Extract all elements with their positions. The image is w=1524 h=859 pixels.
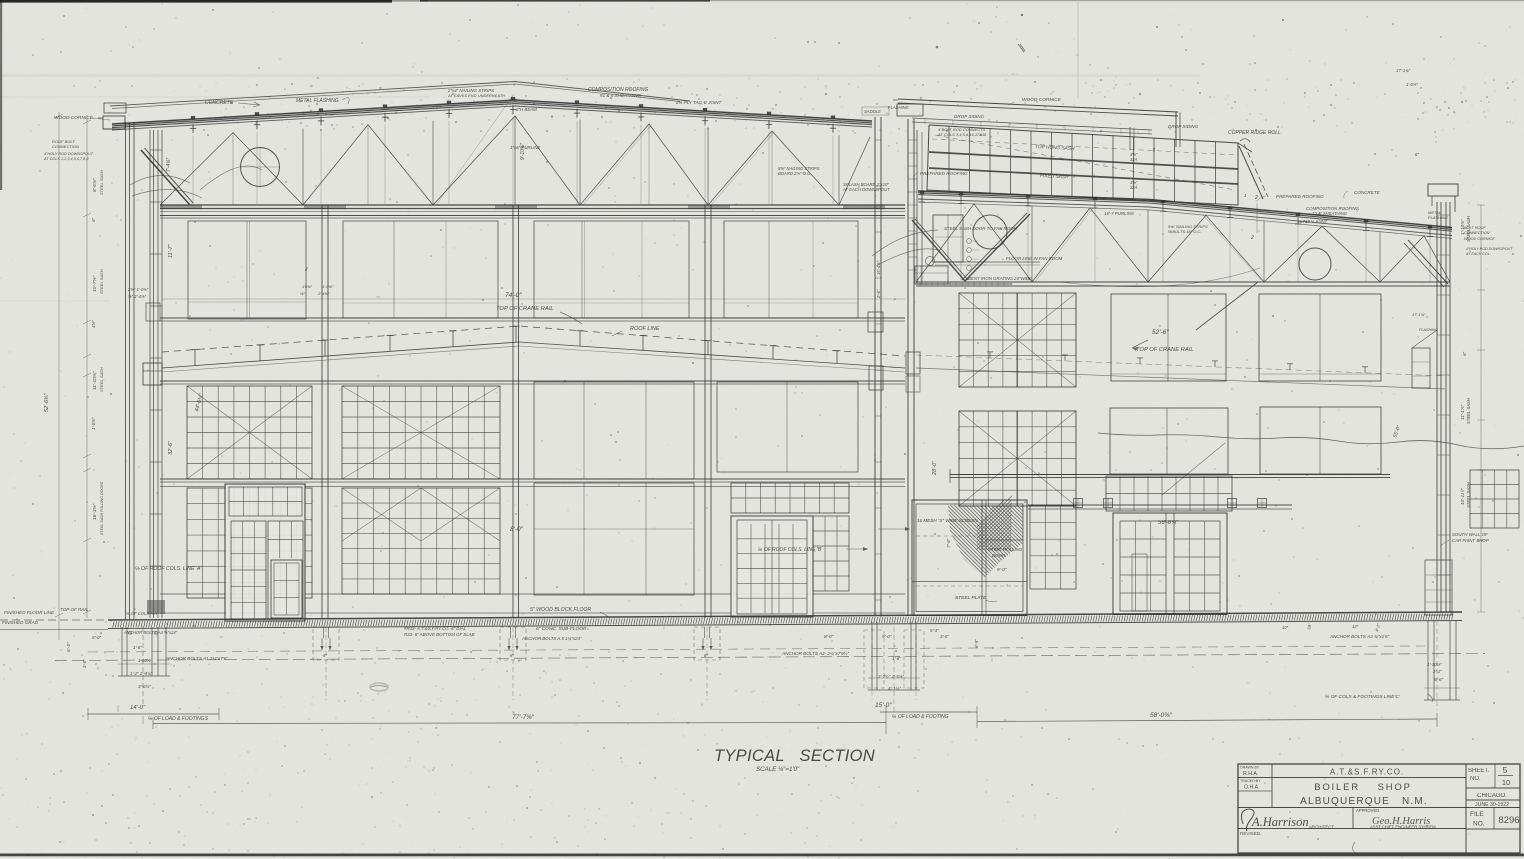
svg-text:14′-0″: 14′-0″: [130, 705, 146, 711]
svg-text:1′-0⅜″: 1′-0⅜″: [1406, 82, 1418, 87]
svg-text:DRAWN BY: DRAWN BY: [1240, 766, 1260, 770]
svg-text:FLOOR LINE IN FAN ROOM: FLOOR LINE IN FAN ROOM: [1006, 256, 1063, 261]
svg-text:TOP OF RAIL: TOP OF RAIL: [60, 607, 89, 612]
svg-text:STEEL PLATE: STEEL PLATE: [955, 595, 987, 601]
svg-text:STEEL SASH: STEEL SASH: [1466, 397, 1471, 424]
svg-text:ARCHITECT.: ARCHITECT.: [1309, 824, 1335, 829]
svg-text:№BOLTS 48″ O.C.: №BOLTS 48″ O.C.: [1168, 229, 1201, 234]
svg-text:METAL FLASHING: METAL FLASHING: [296, 98, 339, 104]
svg-text:℅ OF COLS A-A: ℅ OF COLS A-A: [126, 611, 157, 616]
svg-text:BOARD 2⅞″ O.G.: BOARD 2⅞″ O.G.: [778, 171, 811, 176]
svg-text:9′-0″: 9′-0″: [997, 567, 1007, 573]
svg-text:1: 1: [1244, 193, 1247, 198]
svg-text:8″: 8″: [704, 653, 708, 658]
svg-text:STEEL SASH: STEEL SASH: [99, 170, 104, 195]
svg-text:16′-7 PURLINS: 16′-7 PURLINS: [1104, 211, 1134, 216]
svg-text:DOOR: DOOR: [992, 553, 1006, 558]
svg-text:2″x4″ SHEATHING: 2″x4″ SHEATHING: [1311, 211, 1348, 216]
svg-text:CONCRETE: CONCRETE: [1354, 190, 1381, 195]
svg-text:1′-2″ 2′-4¼″: 1′-2″ 2′-4¼″: [130, 671, 153, 676]
svg-text:WOOD CORNICE: WOOD CORNICE: [1022, 97, 1062, 103]
svg-text:16′-3⅜″: 16′-3⅜″: [92, 503, 98, 520]
svg-text:AT COLS 1,2,3,4,5,6,7,8,9: AT COLS 1,2,3,4,5,6,7,8,9: [43, 157, 89, 161]
svg-text:№7&9 V JOINT: №7&9 V JOINT: [1298, 219, 1328, 224]
svg-text:ANCHOR BOLTS A3 ¾″x1′6″: ANCHOR BOLTS A3 ¾″x1′6″: [1329, 634, 1390, 639]
svg-text:15′-0″: 15′-0″: [875, 702, 892, 709]
svg-text:⅜″: ⅜″: [300, 291, 305, 296]
svg-text:52′-6″: 52′-6″: [1152, 329, 1169, 336]
svg-text:BENT IRON GRATING 24″WIDE: BENT IRON GRATING 24″WIDE: [968, 276, 1032, 281]
svg-text:ANCHOR BOLTS A2- 2¼″x7′9½″: ANCHOR BOLTS A2- 2¼″x7′9½″: [781, 650, 850, 656]
svg-text:4″HOLY ROD DOWNSPOUT: 4″HOLY ROD DOWNSPOUT: [44, 152, 94, 156]
svg-text:8′-0″: 8′-0″: [510, 526, 524, 533]
svg-text:REVISED.: REVISED.: [1240, 831, 1261, 836]
svg-text:10: 10: [1502, 778, 1510, 787]
svg-text:2: 2: [1250, 235, 1254, 241]
svg-text:⅜″ 2′-4⅜″: ⅜″ 2′-4⅜″: [128, 294, 146, 299]
svg-text:7′-4⅜″: 7′-4⅜″: [166, 158, 172, 172]
svg-text:3′-6½″: 3′-6½″: [138, 683, 151, 689]
svg-text:APPROVED.: APPROVED.: [1356, 808, 1380, 813]
svg-text:FLASHING: FLASHING: [1419, 328, 1438, 332]
svg-text:1-10½: 1-10½: [138, 658, 151, 663]
svg-text:PREPARED ROOFING: PREPARED ROOFING: [920, 171, 968, 176]
svg-text:FLASHING: FLASHING: [1428, 215, 1448, 220]
svg-text:8″: 8″: [323, 653, 327, 658]
svg-text:8′-6⅜″: 8′-6⅜″: [92, 178, 98, 192]
svg-text:3′-0″: 3′-0″: [940, 634, 949, 639]
svg-text:17′-1¾″: 17′-1¾″: [1396, 68, 1411, 73]
svg-text:SCALE ⅛″=1′0″: SCALE ⅛″=1′0″: [756, 766, 800, 773]
svg-text:1′-6″: 1′-6″: [133, 645, 142, 650]
svg-text:1′-10⅜″: 1′-10⅜″: [1460, 219, 1465, 235]
svg-text:AT EAVES END UNDERNEATH: AT EAVES END UNDERNEATH: [447, 93, 505, 98]
svg-text:32A: 32A: [1130, 157, 1138, 162]
svg-text:STEEL ROLLING: STEEL ROLLING: [988, 547, 1023, 552]
svg-text:BOILER SHOP: BOILER SHOP: [1314, 782, 1412, 793]
svg-text:1′-0⅜″: 1′-0⅜″: [91, 417, 96, 430]
svg-text:℅ OF ROOF COLS. LINE ‘B’: ℅ OF ROOF COLS. LINE ‘B’: [758, 547, 823, 553]
svg-text:AT EACH COL.: AT EACH COL.: [1465, 252, 1491, 256]
svg-text:2′-4⅜″: 2′-4⅜″: [317, 291, 330, 296]
svg-text:12″: 12″: [1352, 624, 1359, 629]
svg-text:8″H BEAM: 8″H BEAM: [516, 107, 537, 112]
svg-text:#R33- A.T.&S.F.RY.CO.-6″ DIAL: #R33- A.T.&S.F.RY.CO.-6″ DIAL: [404, 626, 467, 631]
svg-text:CAR PAINT SHOP: CAR PAINT SHOP: [1452, 538, 1489, 543]
svg-text:DROP SIDING: DROP SIDING: [954, 114, 985, 119]
svg-text:1′-6″: 1′-6″: [892, 656, 901, 661]
svg-text:SHEET.: SHEET.: [1468, 768, 1489, 774]
svg-text:28′-0″: 28′-0″: [932, 460, 938, 476]
svg-text:2: 2: [1254, 195, 1258, 201]
svg-text:ASST.CHIEF ENGINEER SYSTEM: ASST.CHIEF ENGINEER SYSTEM: [1370, 825, 1436, 830]
svg-text:PREPARED ROOFING: PREPARED ROOFING: [1276, 194, 1324, 199]
svg-text:TOP OF CRANE RAIL: TOP OF CRANE RAIL: [496, 306, 554, 312]
svg-text:ANCHOR BOLTS A1 2¼″x7′6″: ANCHOR BOLTS A1 2¼″x7′6″: [165, 656, 228, 661]
svg-text:O.H.A.: O.H.A.: [1244, 785, 1260, 791]
svg-text:STEEL SASH: STEEL SASH: [1466, 481, 1471, 508]
svg-text:16 MESH “X” WIRE SCREEN: 16 MESH “X” WIRE SCREEN: [917, 518, 978, 523]
svg-text:ANCHOR BOLTS A4 ⅝″x24″: ANCHOR BOLTS A4 ⅝″x24″: [123, 630, 178, 635]
svg-text:1′-0⅜″: 1′-0⅜″: [322, 284, 334, 289]
svg-text:CONNECTION: CONNECTION: [52, 144, 79, 149]
svg-text:CHICAGO.: CHICAGO.: [1477, 793, 1507, 799]
svg-text:ROOF LINE: ROOF LINE: [630, 326, 660, 332]
svg-text:9′-0″: 9′-0″: [882, 634, 892, 640]
svg-text:10′-7⅜″: 10′-7⅜″: [92, 275, 98, 292]
svg-text:FINISHED GRAD: FINISHED GRAD: [2, 620, 39, 625]
svg-text:COPPER RIDGE ROLL: COPPER RIDGE ROLL: [1228, 130, 1281, 136]
svg-text:TRACED BY: TRACED BY: [1240, 779, 1261, 783]
svg-text:11′-7″: 11′-7″: [168, 243, 174, 258]
svg-text:SADDLE: SADDLE: [864, 109, 881, 114]
svg-text:7′-6″: 7′-6″: [946, 538, 951, 548]
svg-text:11′-10⅜″: 11′-10⅜″: [92, 371, 98, 390]
svg-text:℅ OF LOAD & FOOTING: ℅ OF LOAD & FOOTING: [892, 714, 949, 720]
svg-text:2⅜″ 1′-0⅜″: 2⅜″ 1′-0⅜″: [127, 287, 149, 292]
svg-text:℅ OF COLS & FOOTINGS LINE‘C’: ℅ OF COLS & FOOTINGS LINE‘C’: [1325, 694, 1401, 700]
svg-text:2′-1″: 2′-1″: [1432, 669, 1442, 674]
svg-text:AT EACH DOWNSPOUT: AT EACH DOWNSPOUT: [842, 187, 890, 192]
svg-text:NO.: NO.: [1473, 821, 1485, 828]
svg-text:CONCRETE: CONCRETE: [205, 100, 234, 106]
svg-text:A.Harrison: A.Harrison: [1251, 815, 1309, 829]
svg-text:56′-6¼″: 56′-6¼″: [1158, 520, 1179, 526]
svg-text:4′-1½″: 4′-1½″: [888, 685, 901, 691]
svg-text:ANCHOR BOLTS A.5 1¼″x24″: ANCHOR BOLTS A.5 1¼″x24″: [521, 636, 582, 641]
svg-text:#1 & 4 SHEATHING: #1 & 4 SHEATHING: [600, 93, 641, 98]
svg-text:FILE: FILE: [1470, 811, 1484, 818]
svg-text:ALBUQUERQUE N.M.: ALBUQUERQUE N.M.: [1300, 796, 1428, 807]
svg-text:16′-4⅜″: 16′-4⅜″: [876, 260, 881, 275]
svg-text:9′-10⅜″: 9′-10⅜″: [520, 143, 526, 160]
svg-text:R33- 6″ ABOVE BOTTOM OF SLAB: R33- 6″ ABOVE BOTTOM OF SLAB: [404, 632, 475, 637]
svg-text:STEEL SASH FOLDING DOORS: STEEL SASH FOLDING DOORS: [100, 481, 104, 535]
svg-text:10′-11⅟″: 10′-11⅟″: [1460, 488, 1465, 505]
svg-text:R.H.A.: R.H.A.: [1243, 771, 1258, 777]
svg-text:5″ WOOD BLOCK FLOOR: 5″ WOOD BLOCK FLOOR: [530, 607, 591, 613]
svg-text:STEEL SASH: STEEL SASH: [99, 367, 104, 392]
svg-text:6″ CONC. SUB-FLOOR: 6″ CONC. SUB-FLOOR: [536, 626, 587, 632]
svg-text:6′-3″: 6′-3″: [66, 642, 72, 652]
svg-text:AT COLS 3,4,5,6,16,17&18: AT COLS 3,4,5,6,16,17&18: [937, 132, 987, 137]
svg-text:8″: 8″: [510, 653, 514, 658]
svg-text:2⅝ PLY TAG-E JOINT: 2⅝ PLY TAG-E JOINT: [675, 100, 723, 105]
svg-text:SOUTH WALL OF: SOUTH WALL OF: [1452, 532, 1488, 537]
svg-text:1′0⅜″: 1′0⅜″: [302, 284, 313, 289]
svg-text:5: 5: [1503, 765, 1508, 775]
svg-text:TOP OF CRANE RAIL: TOP OF CRANE RAIL: [1136, 347, 1194, 353]
svg-text:STEEL SASH DOOR TO FAN ROOM: STEEL SASH DOOR TO FAN ROOM: [944, 226, 1018, 231]
svg-text:10″: 10″: [1282, 625, 1289, 630]
svg-text:STEEL SASH: STEEL SASH: [99, 269, 104, 294]
svg-text:8′-0″: 8′-0″: [824, 634, 834, 640]
svg-text:58′-0⅜″: 58′-0⅜″: [1150, 712, 1173, 719]
svg-text:FINISHED FLOOR LINE: FINISHED FLOOR LINE: [4, 610, 55, 615]
svg-text:1′-10⅜″: 1′-10⅜″: [1427, 662, 1442, 667]
svg-text:52′-6⅜″: 52′-6⅜″: [44, 392, 50, 412]
svg-text:NO.: NO.: [1470, 776, 1481, 782]
svg-text:WOOD CORNICE.: WOOD CORNICE.: [54, 115, 94, 121]
svg-text:8′-6″: 8′-6″: [1434, 677, 1444, 682]
svg-text:3′-0″: 3′-0″: [82, 659, 87, 668]
svg-text:11′-1⅜″: 11′-1⅜″: [1460, 404, 1465, 420]
svg-text:STEEL SASH: STEEL SASH: [1466, 215, 1471, 242]
svg-text:6′-9″: 6′-9″: [974, 639, 979, 648]
svg-text:4⅜″: 4⅜″: [91, 320, 96, 328]
svg-text:DROP SIDING: DROP SIDING: [1168, 124, 1199, 129]
svg-text:32A: 32A: [1130, 185, 1138, 190]
svg-text:FLASHING: FLASHING: [888, 105, 910, 110]
svg-text:6″: 6″: [1415, 152, 1419, 157]
svg-text:4″HOLY ROD DOWNSPOUT: 4″HOLY ROD DOWNSPOUT: [1466, 247, 1513, 251]
svg-text:74′-0″: 74′-0″: [505, 292, 522, 299]
svg-text:5′-3″: 5′-3″: [930, 628, 939, 633]
svg-text:℅ OF ROOF COLS. LINE ‘A’: ℅ OF ROOF COLS. LINE ‘A’: [135, 566, 202, 572]
svg-text:A.T.&S.F.RY.CO.: A.T.&S.F.RY.CO.: [1330, 768, 1404, 777]
svg-text:2′-6″: 2′-6″: [876, 289, 881, 299]
svg-text:5′-0″: 5′-0″: [92, 635, 102, 640]
svg-text:6″: 6″: [1462, 351, 1467, 356]
svg-text:2′-7½″ 1′-5⅜″: 2′-7½″ 1′-5⅜″: [877, 674, 904, 679]
svg-text:6″: 6″: [91, 217, 96, 222]
svg-text:8296: 8296: [1498, 815, 1519, 826]
svg-text:TYPICAL SECTION: TYPICAL SECTION: [714, 747, 875, 765]
svg-text:JUNE 30-1922: JUNE 30-1922: [1475, 802, 1509, 808]
svg-text:32′-6″: 32′-6″: [168, 440, 174, 455]
svg-text:77′-7⅜″: 77′-7⅜″: [512, 714, 535, 721]
svg-text:℅ OF LOAD & FOOTINGS: ℅ OF LOAD & FOOTINGS: [148, 716, 209, 722]
svg-text:17′-1¾″: 17′-1¾″: [1412, 312, 1426, 317]
